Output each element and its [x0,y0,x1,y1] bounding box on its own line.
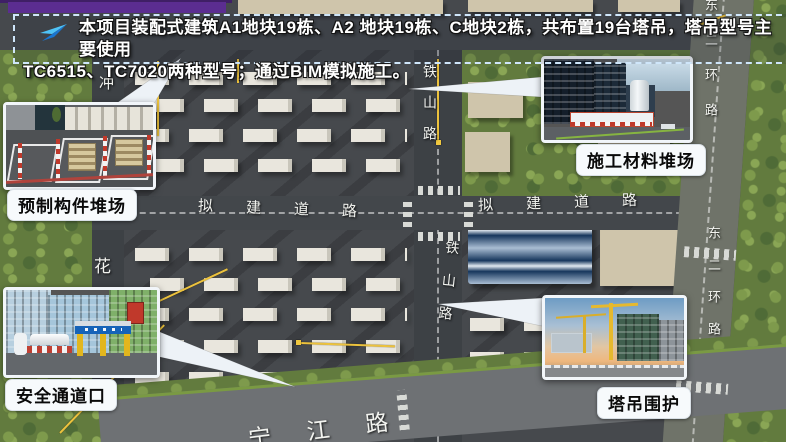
top-accent-bar [8,2,226,13]
art-fence-pen-1 [7,144,59,182]
paper-plane-icon [39,23,69,43]
callout-label-safety-entrance: 安全通道口 [5,379,117,411]
art-striped-post [103,136,107,177]
art-enclosure-fence [545,365,684,368]
art-canopy-post [124,334,130,356]
art-yard-barrier [570,122,652,126]
callout-label-crane-enclosure: 塔吊围护 [597,387,691,419]
art-grey-building [659,320,684,361]
art-truck [661,124,676,129]
safety-entrance-art [6,290,157,375]
prefab-yard-art [6,105,153,187]
art-canopy-post [100,334,106,356]
art-tree [52,107,61,122]
pointer-safety [160,332,296,387]
art-canopy-post [77,334,83,356]
header-banner: 本项目装配式建筑A1地块19栋、A2 地块19栋、C地块2栋，共布置19台塔吊，… [13,14,786,64]
callout-label-material-yard: 施工材料堆场 [576,144,706,176]
art-component-stack-2 [115,139,143,166]
slide-canvas: 铁山路 铁山路 拟建道路 拟建道路 东二环路 东二环路 花 冲 宁江路 [0,0,786,442]
banner-text-line-2: TC6515、TC7020两种型号；通过BIM模拟施工。 [23,61,786,83]
art-barrier [27,346,72,353]
art-distant-city [551,333,593,354]
callout-photo-prefab-yard [3,102,156,190]
art-component-stack-1 [68,143,96,171]
crane-enclosure-art [545,298,684,377]
callout-photo-safety-entrance [3,287,160,378]
art-building-white [65,107,153,129]
pointer-crane [438,298,542,326]
art-ground [545,366,684,377]
art-green-glass-building [617,314,659,361]
art-striped-post [147,135,151,176]
callout-photo-crane-enclosure [542,295,687,380]
banner-text-line-1: 本项目装配式建筑A1地块19栋、A2 地块19栋、C地块2栋，共布置19台塔吊，… [79,17,786,61]
art-silo [630,80,649,111]
art-silo-small [14,333,28,355]
art-striped-post [56,139,60,178]
art-crane-mast-1 [583,315,586,353]
callout-label-prefab-yard: 预制构件堆场 [7,189,137,221]
art-crane-mast-2 [609,303,613,360]
art-tent [30,334,69,345]
art-canopy-sign-text [85,328,123,331]
art-striped-post [18,143,22,179]
